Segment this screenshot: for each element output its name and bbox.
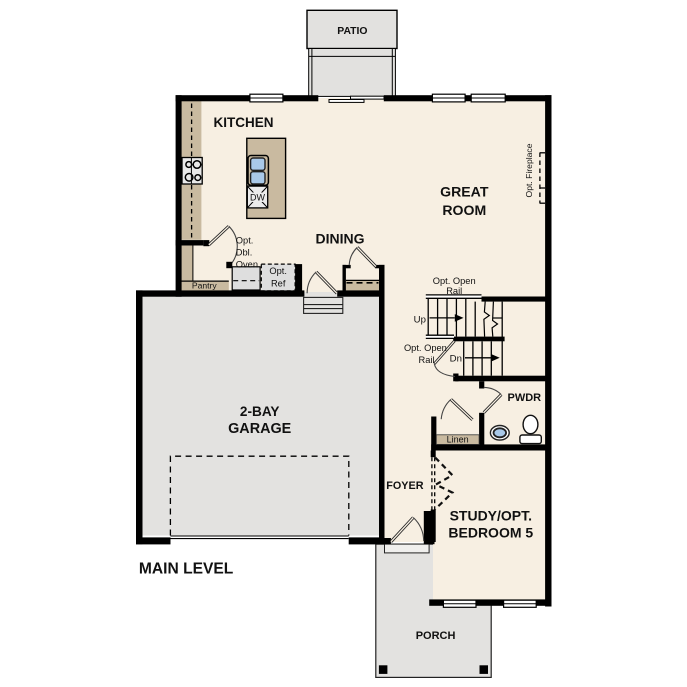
svg-text:GREAT: GREAT [440,183,489,199]
svg-text:Opt. Fireplace: Opt. Fireplace [524,143,534,197]
svg-text:STUDY/OPT.: STUDY/OPT. [450,507,532,523]
svg-text:Up: Up [414,315,426,326]
svg-text:BEDROOM 5: BEDROOM 5 [448,524,533,540]
svg-text:2-BAY: 2-BAY [240,404,280,419]
svg-text:Rail: Rail [446,286,462,296]
svg-text:Opt. Open: Opt. Open [433,276,476,286]
svg-text:DINING: DINING [316,230,365,246]
svg-text:Opt.: Opt. [269,266,287,276]
svg-text:Rail: Rail [418,355,434,365]
svg-text:GARAGE: GARAGE [228,421,292,437]
svg-text:DW: DW [250,193,265,203]
svg-text:Oven: Oven [236,259,258,269]
svg-text:ROOM: ROOM [442,202,486,218]
svg-text:KITCHEN: KITCHEN [214,115,274,130]
svg-text:Dbl.: Dbl. [236,248,253,258]
svg-text:PATIO: PATIO [337,26,367,37]
svg-text:FOYER: FOYER [386,480,423,492]
svg-text:Pantry: Pantry [192,281,218,291]
svg-text:Opt. Open: Opt. Open [404,343,447,353]
svg-text:Ref: Ref [271,279,286,289]
svg-text:PORCH: PORCH [416,630,456,642]
svg-text:Linen: Linen [447,435,469,445]
svg-text:Dn: Dn [450,353,462,364]
svg-text:Opt.: Opt. [236,235,254,245]
svg-text:MAIN LEVEL: MAIN LEVEL [139,561,234,578]
svg-text:PWDR: PWDR [507,392,541,404]
